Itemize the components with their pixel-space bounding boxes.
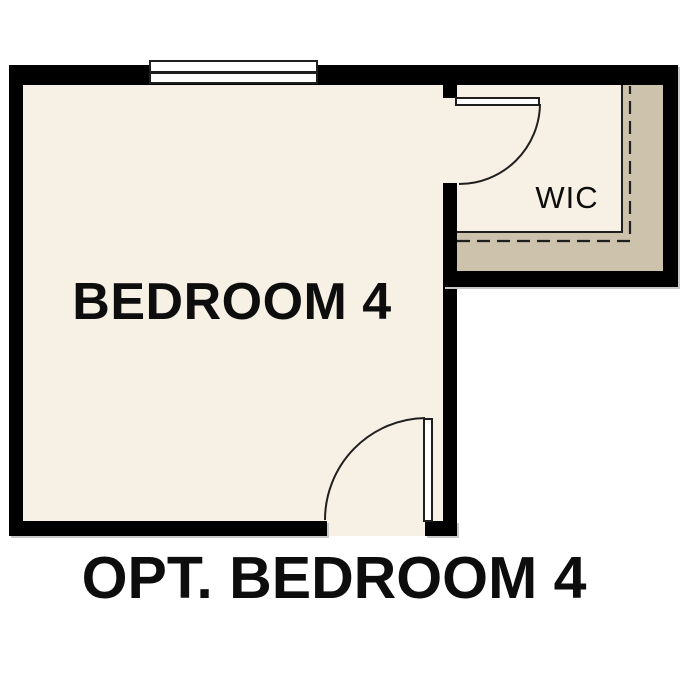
wic-door-threshold [443, 98, 457, 183]
wall-divider-top-stub [443, 65, 457, 98]
wall-left [9, 65, 23, 536]
window-symbol [149, 60, 318, 84]
bedroom-door-leaf [423, 418, 433, 522]
wall-divider-main [443, 183, 457, 536]
room-label-bedroom4: BEDROOM 4 [72, 272, 391, 332]
floor-plan: BEDROOM 4 WIC OPT. BEDROOM 4 [0, 0, 687, 687]
wic-door-leaf [455, 97, 540, 106]
bedroom-door-threshold [327, 521, 425, 536]
room-label-wic: WIC [535, 180, 598, 216]
wall-wic-bottom [443, 271, 678, 287]
wall-wic-right [663, 65, 678, 287]
wall-bottom [9, 521, 327, 536]
window-mullion [151, 71, 316, 74]
plan-caption: OPT. BEDROOM 4 [82, 544, 587, 612]
wall-top [9, 65, 678, 85]
